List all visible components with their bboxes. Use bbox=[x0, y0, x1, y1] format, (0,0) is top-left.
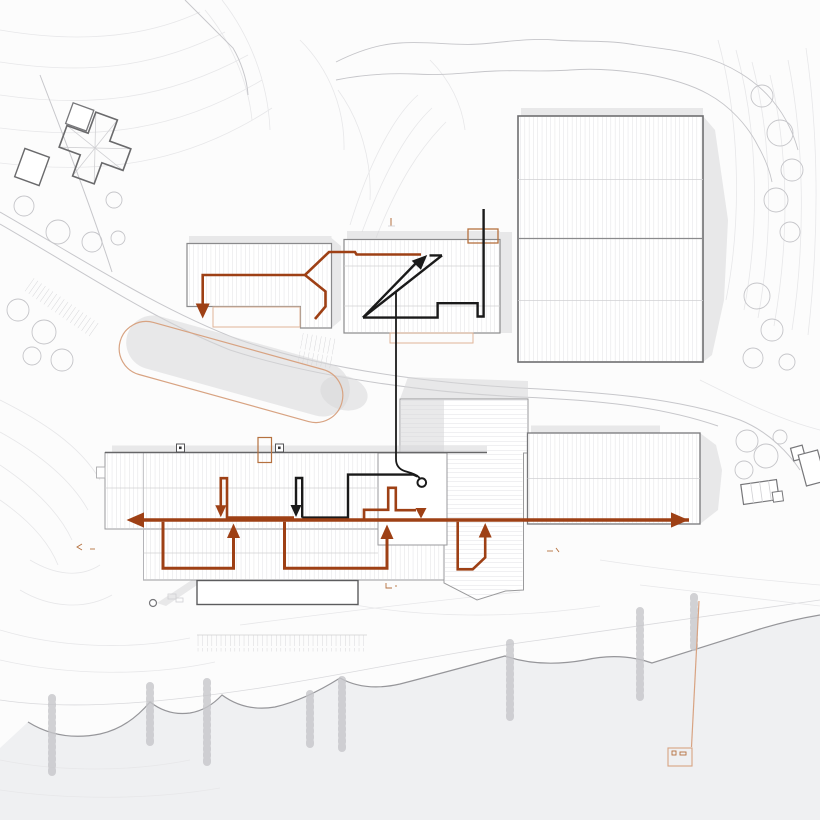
building-north-centre bbox=[344, 218, 512, 343]
basement-plinth bbox=[197, 581, 358, 605]
site-plan-canvas bbox=[0, 0, 820, 820]
building-east-hall bbox=[528, 426, 723, 525]
building-north-east-hall bbox=[518, 108, 728, 362]
site-marker-circle bbox=[150, 600, 157, 607]
site-plan-page bbox=[0, 0, 820, 820]
